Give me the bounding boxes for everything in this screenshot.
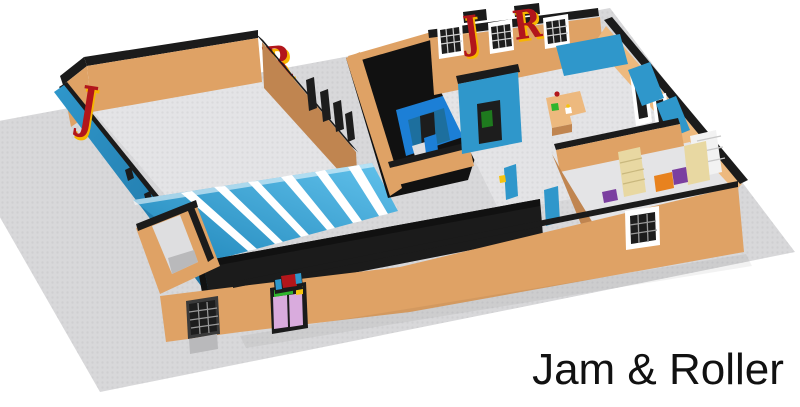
window-pane [491,24,512,49]
counter-item-yellow [566,104,570,108]
front-right-window [625,206,660,250]
doorway-frame [504,164,518,200]
lavender-entrance-door [270,273,308,334]
window-pane [440,27,461,54]
lounge-letter-r: R R [510,0,548,52]
door-panel-left [273,295,288,329]
door-top-blue [295,273,302,284]
window-pane [189,300,217,335]
lego-model-render: J J R R [0,0,800,407]
door-top-red [281,274,297,288]
render-canvas: J J R R [0,0,800,407]
shelf-unit [684,141,710,185]
window-pane [546,19,567,44]
counter-item-white [565,107,572,114]
door-panel-right [289,293,303,327]
front-left-window [186,296,220,354]
door-top-blue [275,279,282,290]
lattice-window-2 [488,19,514,54]
counter-item-red [554,91,559,96]
wall-lamp [499,175,506,183]
lattice-window-3 [543,14,570,49]
counter-item-green [551,103,559,111]
lattice-window-1 [437,22,464,59]
plant [481,110,493,128]
purple-box [672,167,688,185]
window-pane [630,212,656,244]
caption-text: Jam & Roller [532,345,784,394]
